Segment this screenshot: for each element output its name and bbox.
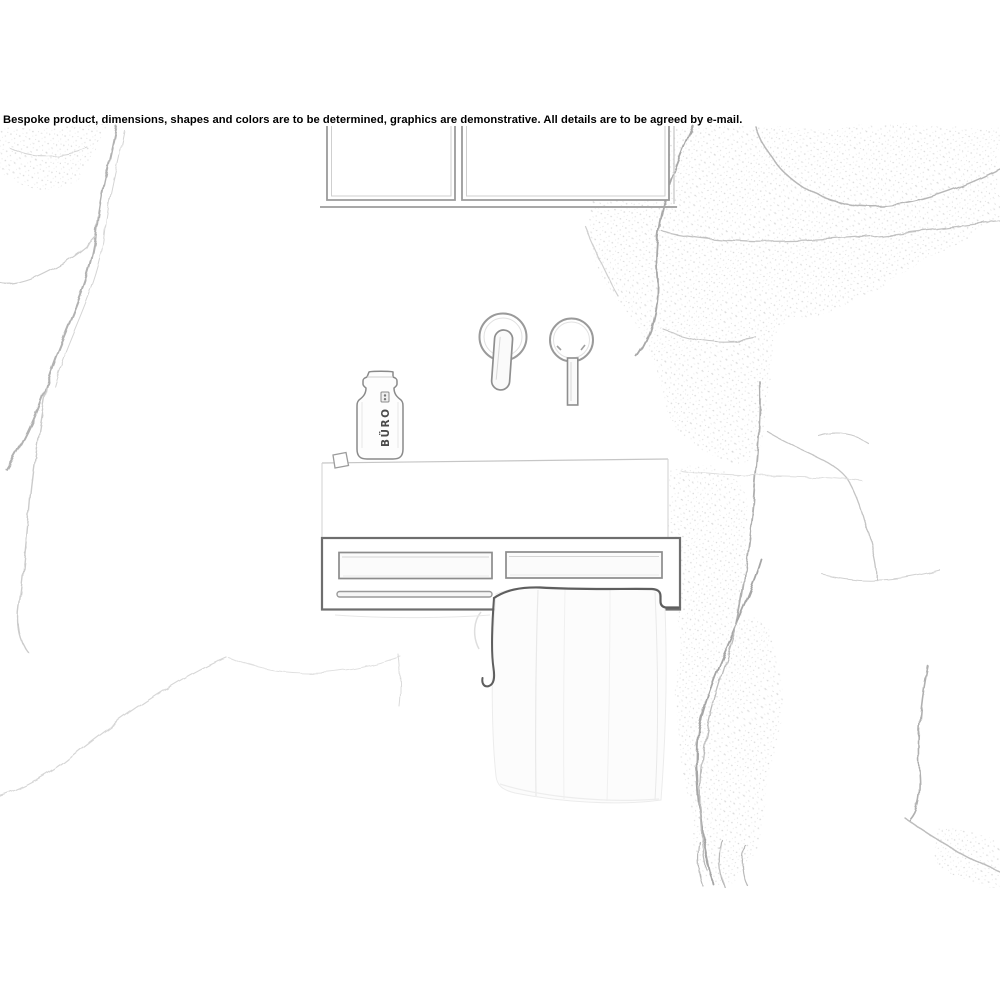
marble-texture-bottom-right <box>932 824 1000 892</box>
bottle-stopper-mark <box>381 392 389 402</box>
drain-arc <box>475 612 481 649</box>
bottle-label: BÜRO <box>378 407 392 447</box>
shelf-niche-left <box>339 553 492 579</box>
marble-texture-right-lower <box>667 465 780 886</box>
shelf-shadow <box>335 615 490 618</box>
mirror-cabinet <box>320 126 677 207</box>
washbasin <box>322 459 668 538</box>
towel-body <box>492 587 666 803</box>
faucet-handle <box>480 314 527 391</box>
bathroom-sketch: BÜRO <box>0 0 1000 1000</box>
glass-bottle: BÜRO <box>357 371 403 459</box>
soap-bar <box>333 453 349 469</box>
towel <box>482 587 678 803</box>
towel-rail <box>337 592 492 598</box>
mirror-panel-right <box>462 126 669 200</box>
faucet-spout <box>550 319 593 406</box>
disclaimer-text: Bespoke product, dimensions, shapes and … <box>3 114 742 126</box>
product-image: BÜRO <box>0 0 1000 1000</box>
shelf-niche-right <box>506 552 662 578</box>
mirror-panel-left <box>327 126 455 200</box>
